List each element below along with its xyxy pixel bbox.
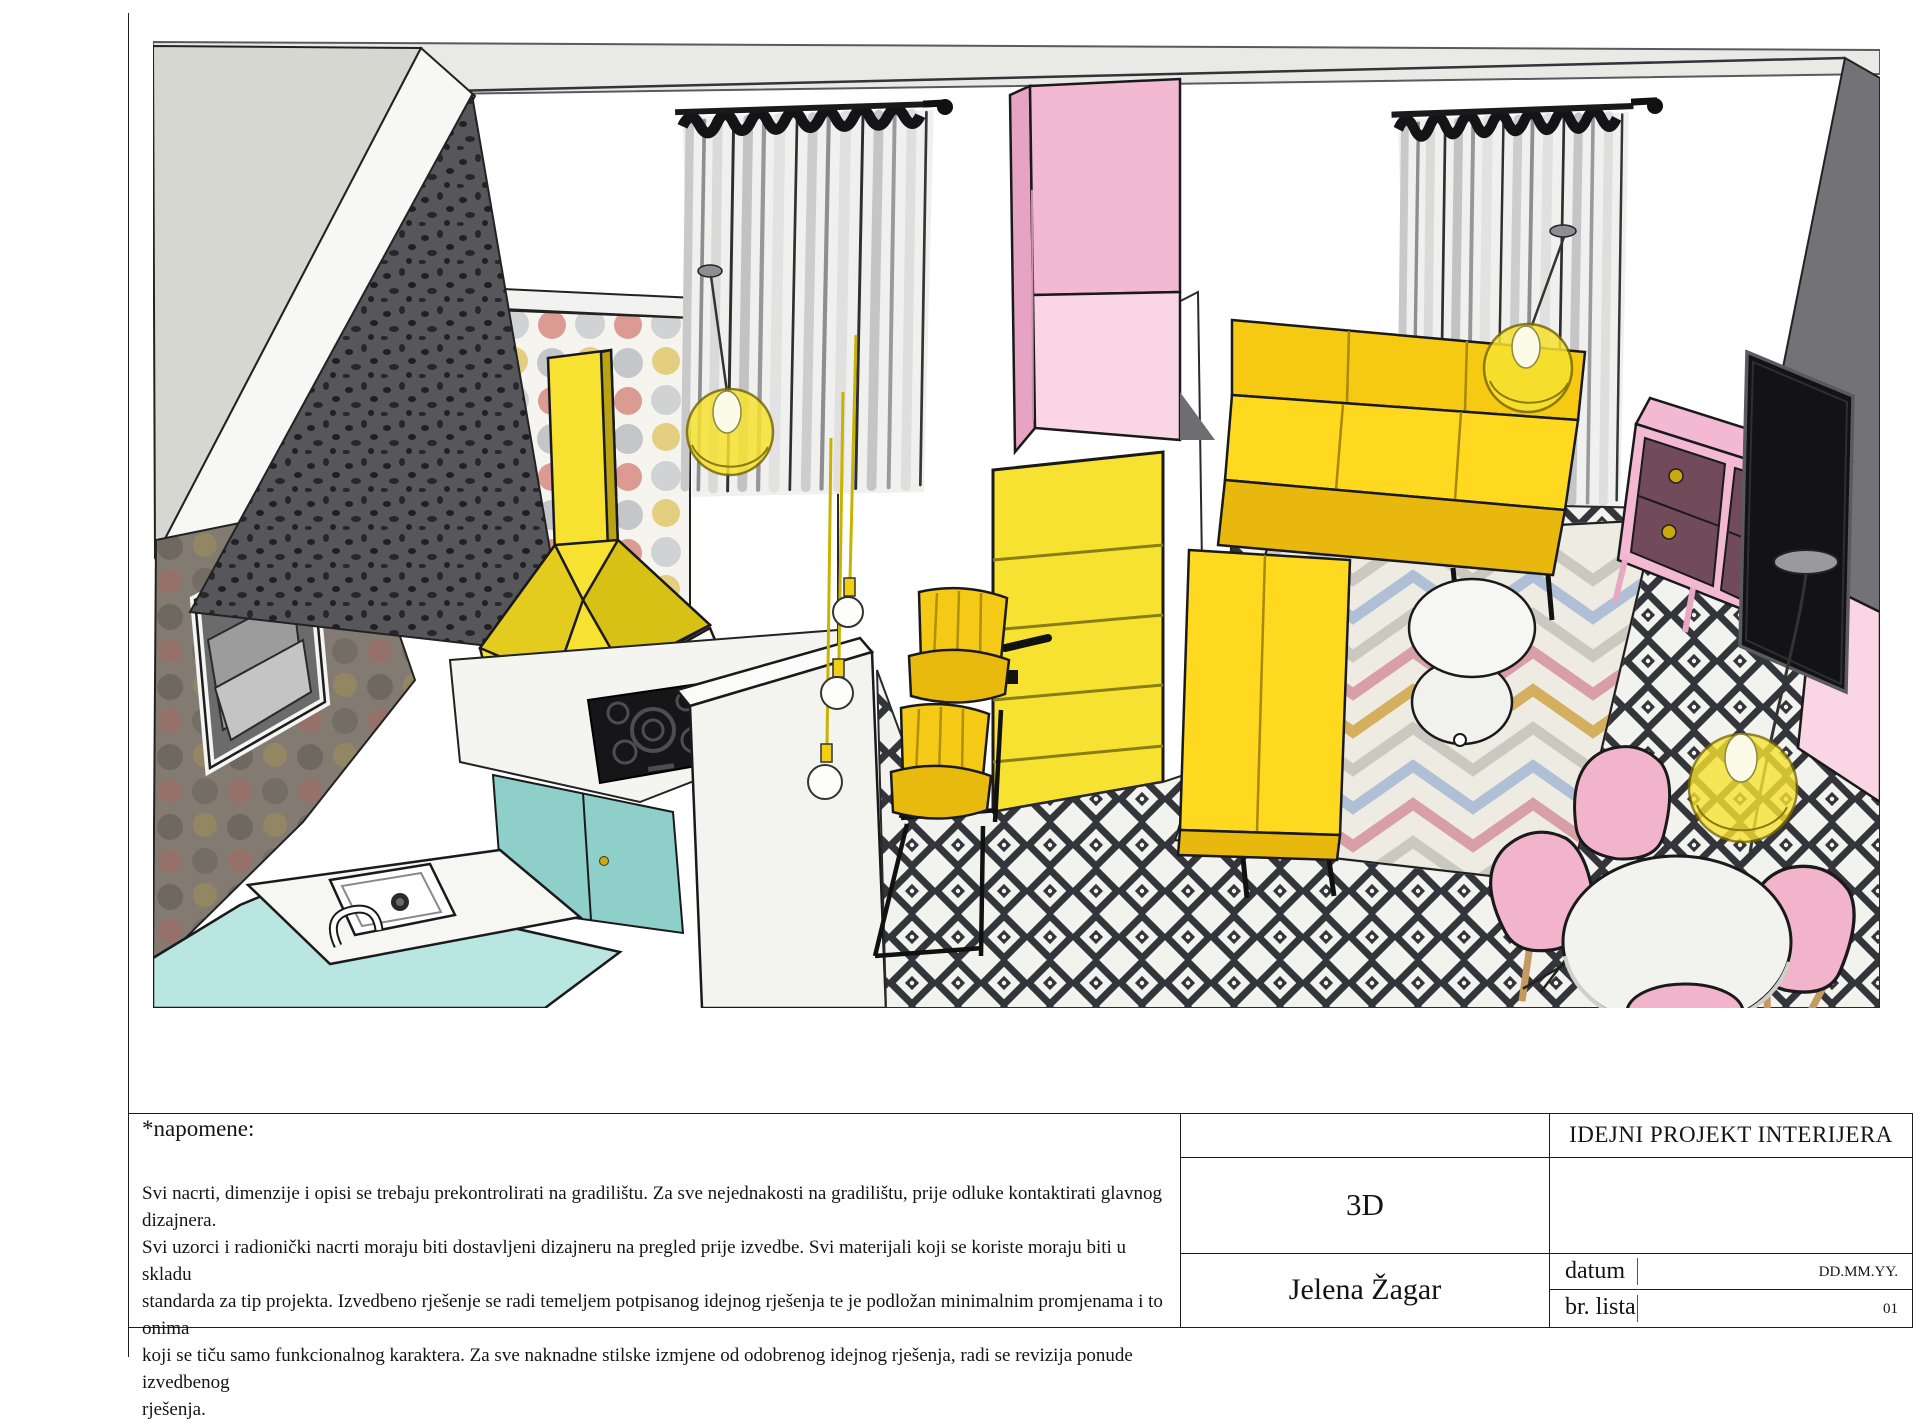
sheet-left-border <box>128 13 129 1357</box>
designer-name: Jelena Žagar <box>1181 1253 1549 1327</box>
notes-line: standarda za tip projekta. Izvedbeno rje… <box>142 1288 1172 1342</box>
notes-line: Svi nacrti, dimenzije i opisi se trebaju… <box>142 1180 1172 1234</box>
date-label: datum <box>1565 1258 1625 1285</box>
sheet-number-value: 01 <box>1640 1301 1898 1318</box>
titleblock-row-line <box>1549 1289 1913 1290</box>
project-title: IDEJNI PROJEKT INTERIJERA <box>1550 1113 1912 1157</box>
notes-paragraph: Svi nacrti, dimenzije i opisi se trebaju… <box>142 1180 1172 1423</box>
tv <box>1740 352 1853 692</box>
sheet-number-label: br. lista <box>1565 1294 1636 1321</box>
titleblock-border <box>1912 1113 1913 1328</box>
field-divider <box>1637 1295 1638 1322</box>
interior-door <box>993 452 1163 812</box>
render-3d <box>153 40 1880 1008</box>
view-label: 3D <box>1181 1157 1549 1253</box>
field-divider <box>1637 1258 1638 1285</box>
date-value: DD.MM.YY. <box>1640 1264 1898 1281</box>
notes-heading: *napomene: <box>142 1116 254 1142</box>
breakfast-bar <box>677 638 886 1008</box>
notes-line: rješenja. <box>142 1396 1172 1423</box>
notes-line: koji se tiču samo funkcionalnog karakter… <box>142 1342 1172 1396</box>
notes-line: Svi uzorci i radionički nacrti moraju bi… <box>142 1234 1172 1288</box>
